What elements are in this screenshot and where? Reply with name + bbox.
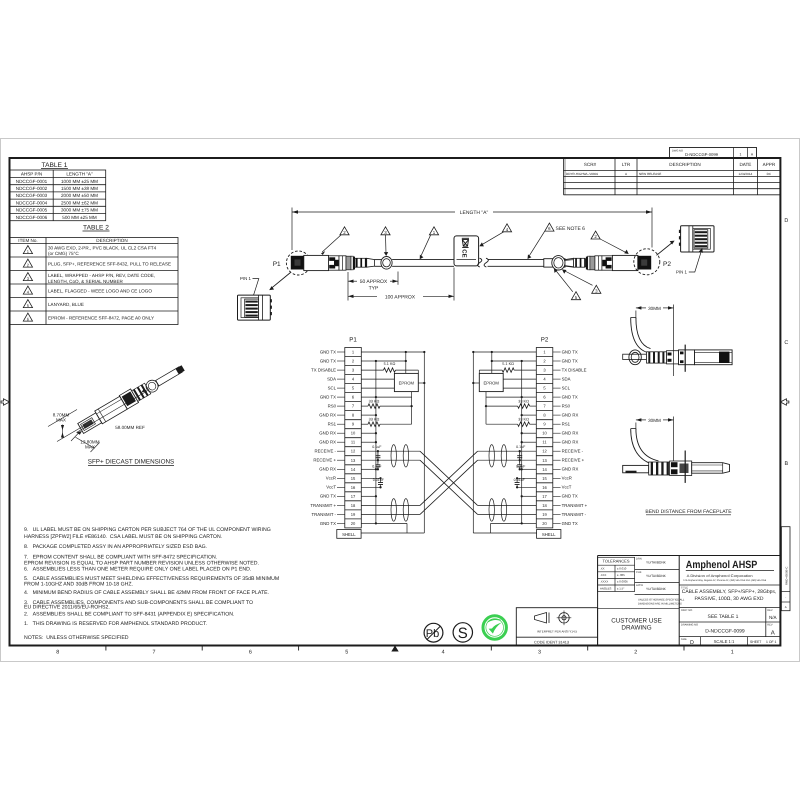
svg-text:0.1uF: 0.1uF [516, 465, 526, 469]
svg-text:.XXX: .XXX [600, 573, 607, 577]
svg-text:P1: P1 [273, 261, 281, 268]
svg-text:D: D [690, 640, 694, 646]
svg-text:ANGLES: ANGLES [600, 586, 611, 590]
svg-text:11: 11 [351, 440, 356, 445]
svg-text:D: D [784, 218, 788, 224]
svg-text:2: 2 [634, 649, 637, 655]
svg-text:0.1uF: 0.1uF [516, 445, 526, 449]
svg-text:RS0: RS0 [562, 404, 571, 409]
svg-text:D-NDCCGF-0099: D-NDCCGF-0099 [685, 152, 719, 157]
svg-text:16: 16 [351, 485, 356, 490]
svg-text:DWG NO: DWG NO [672, 150, 683, 153]
svg-text:± .005: ± .005 [617, 573, 625, 577]
svg-text:CUSTOMER USE: CUSTOMER USE [611, 618, 662, 625]
svg-text:50 APPROX: 50 APPROX [360, 279, 388, 285]
svg-text:B: B [784, 461, 788, 467]
svg-text:13: 13 [351, 458, 356, 463]
svg-text:RS0: RS0 [328, 404, 337, 409]
svg-text:GND RX: GND RX [562, 431, 579, 436]
svg-text:SHELL: SHELL [542, 532, 556, 537]
svg-text:DESCRIPTION: DESCRIPTION [96, 238, 127, 243]
svg-text:19: 19 [351, 512, 356, 517]
svg-text:FROM 1-10GHZ AND 30dB FROM 10-: FROM 1-10GHZ AND 30dB FROM 10-18 GHZ. [24, 582, 133, 588]
svg-text:APPR: APPR [763, 162, 776, 167]
svg-text:YU/TAI/BDNK: YU/TAI/BDNK [646, 574, 667, 578]
svg-text:100 APPROX: 100 APPROX [385, 294, 416, 300]
svg-text:UNLESS OTHERWISE SPECIFIED ALL: UNLESS OTHERWISE SPECIFIED ALL [638, 599, 685, 602]
svg-text:33 KΩ: 33 KΩ [369, 418, 380, 422]
svg-text:SEE NOTE 6: SEE NOTE 6 [556, 226, 586, 232]
svg-text:APPD: APPD [636, 584, 643, 587]
svg-text:GND RX: GND RX [562, 413, 579, 418]
svg-text:± 0.0005: ± 0.0005 [617, 580, 628, 584]
svg-text:SCL: SCL [328, 386, 337, 391]
svg-text:GND RX: GND RX [319, 467, 336, 472]
svg-text:SCL: SCL [562, 386, 571, 391]
svg-text:GND TX: GND TX [320, 358, 336, 363]
svg-text:VccR: VccR [326, 476, 336, 481]
svg-text:1: 1 [731, 649, 734, 655]
svg-text:GND TX: GND TX [320, 494, 336, 499]
svg-text:TRANSMIT -: TRANSMIT - [562, 512, 587, 517]
svg-text:12: 12 [351, 449, 356, 454]
svg-text:500 MM ±25 MM: 500 MM ±25 MM [62, 215, 97, 220]
svg-text:EPROM - REFERENCE SFF-8472, PA: EPROM - REFERENCE SFF-8472, PAGE A0 ONLY [48, 315, 154, 320]
svg-text:11: 11 [542, 440, 547, 445]
svg-text:LABEL, FLAGGED - WEEE LOGO AND: LABEL, FLAGGED - WEEE LOGO AND CE LOGO [48, 288, 152, 293]
svg-text:1000 MM ±25 MM: 1000 MM ±25 MM [61, 179, 98, 184]
svg-text:0.01uF: 0.01uF [514, 478, 526, 482]
svg-text:0.1uF: 0.1uF [372, 445, 382, 449]
svg-text:RECEIVE +: RECEIVE + [562, 458, 585, 463]
svg-text:2000 MM ±50 MM: 2000 MM ±50 MM [61, 193, 98, 198]
svg-text:NDCCGF-0002: NDCCGF-0002 [16, 186, 48, 191]
svg-text:1 OF 1: 1 OF 1 [766, 640, 776, 644]
svg-text:TABLE 1: TABLE 1 [42, 162, 68, 169]
svg-text:P1: P1 [349, 337, 357, 344]
svg-text:33 KΩ: 33 KΩ [369, 399, 380, 403]
svg-text:REV: REV [767, 609, 773, 612]
svg-text:.XX: .XX [600, 567, 605, 571]
svg-text:CABLE ASSEMBLY, SFP+/SFP+,: CABLE ASSEMBLY, SFP+/SFP+, 28Gbps, [682, 589, 777, 595]
svg-text:± 0.010: ± 0.010 [617, 567, 627, 571]
svg-text:3: 3 [538, 649, 541, 655]
svg-text:8. PACKAGE COMPLETED ASSY IN: 8. PACKAGE COMPLETED ASSY IN AN APPROPRI… [24, 544, 207, 550]
svg-text:3000 MM ±75 MM: 3000 MM ±75 MM [61, 208, 98, 213]
svg-text:1: 1 [740, 153, 742, 157]
svg-text:Amphenol AHSP: Amphenol AHSP [686, 559, 758, 571]
svg-text:GND RX: GND RX [562, 440, 579, 445]
svg-text:DIMENSIONS ARE IN MILLIMETERS: DIMENSIONS ARE IN MILLIMETERS [638, 602, 682, 605]
svg-text:TRANSMIT +: TRANSMIT + [310, 503, 336, 508]
svg-text:.XXXX: .XXXX [600, 580, 608, 584]
svg-text:SFP+ DIECAST DIMENSIONS: SFP+ DIECAST DIMENSIONS [88, 459, 174, 466]
svg-text:YU/TAI/BDNK: YU/TAI/BDNK [646, 561, 667, 565]
svg-text:13: 13 [542, 458, 547, 463]
svg-text:MAX: MAX [56, 418, 66, 423]
svg-text:GND RX: GND RX [319, 431, 336, 436]
svg-text:CE: CE [461, 249, 468, 257]
svg-text:NDCCGF-0001: NDCCGF-0001 [16, 179, 48, 184]
svg-text:SEE TABLE 1: SEE TABLE 1 [708, 614, 739, 620]
svg-text:20: 20 [351, 521, 356, 526]
svg-text:18: 18 [542, 503, 547, 508]
svg-text:10: 10 [542, 431, 547, 436]
svg-text:SHELL: SHELL [342, 532, 356, 537]
svg-text:PART NO: PART NO [681, 609, 692, 612]
svg-text:PASSIVE, 100Ω, 30 AWG EXD: PASSIVE, 100Ω, 30 AWG EXD [694, 596, 763, 602]
svg-text:RECEIVE -: RECEIVE - [562, 449, 584, 454]
svg-text:TRANSMIT +: TRANSMIT + [562, 503, 588, 508]
svg-text:0.1uF: 0.1uF [372, 465, 382, 469]
svg-text:6: 6 [249, 649, 252, 655]
svg-text:BEND DISTANCE FROM FACEPLATE: BEND DISTANCE FROM FACEPLATE [645, 509, 732, 515]
svg-text:CODE IDENT 31413: CODE IDENT 31413 [534, 641, 569, 645]
svg-text:NDCCGF-0006: NDCCGF-0006 [16, 215, 48, 220]
svg-text:GND TX: GND TX [320, 349, 336, 354]
svg-text:SHEET: SHEET [750, 640, 761, 644]
svg-text:123 Amphenol Way, Nogales AZ,: 123 Amphenol Way, Nogales AZ, Phoenix AZ… [683, 579, 767, 582]
svg-text:12/4/2014: 12/4/2014 [739, 172, 753, 176]
svg-text:RS1: RS1 [562, 422, 571, 427]
svg-text:NDCCGF-0005: NDCCGF-0005 [16, 208, 48, 213]
svg-text:SDA: SDA [562, 377, 571, 382]
svg-text:RECEIVE -: RECEIVE - [315, 449, 337, 454]
svg-text:4: 4 [442, 649, 445, 655]
svg-text:ITEM No.: ITEM No. [18, 238, 37, 243]
svg-text:SCR#: SCR# [584, 162, 597, 167]
svg-text:LENGTH "A": LENGTH "A" [460, 210, 489, 216]
svg-text:20: 20 [542, 521, 547, 526]
svg-text:10: 10 [351, 431, 356, 436]
svg-text:EPROM: EPROM [399, 381, 415, 386]
svg-text:5.1 KΩ: 5.1 KΩ [384, 362, 396, 366]
svg-text:P2: P2 [663, 261, 671, 268]
svg-text:NOTES: UNLESS OTHERWISE SPECI: NOTES: UNLESS OTHERWISE SPECIFIED [24, 635, 129, 641]
svg-text:PIN 1: PIN 1 [240, 276, 252, 281]
svg-text:C: C [784, 340, 788, 346]
svg-text:PIN 1: PIN 1 [676, 270, 688, 275]
svg-text:SDA: SDA [327, 377, 336, 382]
svg-text:17: 17 [542, 494, 547, 499]
svg-text:LABEL, WRAPPED - AHSP P/N, REV: LABEL, WRAPPED - AHSP P/N, REV, DATE COD… [48, 273, 155, 278]
svg-text:HARNESS [ZPFW2] FILE #E86140.: HARNESS [ZPFW2] FILE #E86140. CSA LABEL … [24, 534, 222, 540]
svg-text:DRAWING NO: DRAWING NO [681, 624, 698, 627]
svg-text:19: 19 [542, 512, 547, 517]
svg-text:2. ASSEMBLIES SHALL BE COMPL: 2. ASSEMBLIES SHALL BE COMPLIANT TO SFF-… [24, 612, 234, 618]
svg-text:GND TX: GND TX [562, 395, 578, 400]
svg-text:LTR: LTR [622, 162, 631, 167]
svg-text:1500 MM ±38 MM: 1500 MM ±38 MM [61, 186, 98, 191]
svg-text:14: 14 [351, 467, 356, 472]
svg-text:TABLE 2: TABLE 2 [83, 225, 109, 232]
svg-text:± 1.5°: ± 1.5° [617, 586, 624, 590]
svg-text:DESCRIPTION: DESCRIPTION [669, 162, 700, 167]
svg-text:D-NDCCGF-0099: D-NDCCGF-0099 [705, 629, 745, 635]
svg-text:LENGTH, CoO, & SERIAL NUMBER: LENGTH, CoO, & SERIAL NUMBER [48, 279, 124, 284]
svg-text:NDCCGF-0004: NDCCGF-0004 [16, 200, 48, 205]
svg-text:7. EPROM CONTENT SHALL BE CO: 7. EPROM CONTENT SHALL BE COMPLIANT WITH… [24, 554, 217, 560]
svg-text:GND RX: GND RX [319, 440, 336, 445]
svg-text:SCALE 1:1: SCALE 1:1 [714, 639, 735, 644]
svg-text:GND TX: GND TX [562, 358, 578, 363]
svg-text:GND TX: GND TX [562, 349, 578, 354]
svg-text:15: 15 [351, 476, 356, 481]
svg-text:VccT: VccT [326, 485, 336, 490]
svg-text:EU DIRECTIVE 2011/65/EU-ROHS2.: EU DIRECTIVE 2011/65/EU-ROHS2. [24, 605, 110, 611]
svg-text:TX DISABLE: TX DISABLE [562, 367, 587, 372]
svg-text:RECEIVE +: RECEIVE + [313, 458, 336, 463]
svg-text:VccT: VccT [562, 485, 572, 490]
svg-text:TRANSMIT -: TRANSMIT - [311, 512, 336, 517]
svg-text:INTERPRET PER ANSI Y14.5: INTERPRET PER ANSI Y14.5 [537, 630, 578, 634]
svg-text:DATE: DATE [739, 162, 751, 167]
svg-text:DRN: DRN [636, 558, 642, 561]
svg-text:9. UL LABEL MUST BE ON SHIPP: 9. UL LABEL MUST BE ON SHIPPING CARTON P… [24, 527, 271, 533]
svg-text:RMD-4500B-C: RMD-4500B-C [785, 567, 789, 585]
svg-text:TYP: TYP [369, 286, 379, 292]
svg-text:1. THIS DRAWING IS RESERVED: 1. THIS DRAWING IS RESERVED FOR AMPHENOL… [24, 621, 207, 627]
svg-text:GND RX: GND RX [562, 467, 579, 472]
svg-text:EPROM REVISION IS EQUAL TO AHS: EPROM REVISION IS EQUAL TO AHSP PART NUM… [24, 561, 259, 567]
svg-text:17: 17 [351, 494, 356, 499]
svg-text:SIZE: SIZE [681, 638, 687, 641]
svg-text:GND RX: GND RX [319, 413, 336, 418]
svg-text:33 KΩ: 33 KΩ [518, 399, 529, 403]
svg-text:15: 15 [542, 476, 547, 481]
svg-text:TX DISABLE: TX DISABLE [311, 367, 336, 372]
svg-text:0.01uF: 0.01uF [373, 478, 385, 482]
svg-text:GND TX: GND TX [562, 521, 578, 526]
svg-text:30MM: 30MM [648, 418, 661, 423]
svg-text:N/A: N/A [769, 615, 778, 620]
svg-text:DC: DC [767, 172, 772, 176]
svg-text:16: 16 [542, 485, 547, 490]
svg-text:DDYR-HIGHWL-V0801: DDYR-HIGHWL-V0801 [566, 172, 598, 176]
svg-text:-: - [785, 595, 786, 599]
svg-text:6. ASSEMBLIES LESS THAN ONE: 6. ASSEMBLIES LESS THAN ONE METER REQUIR… [24, 567, 251, 573]
svg-text:TOLERANCES: TOLERANCES [602, 559, 629, 564]
svg-text:VccR: VccR [562, 476, 572, 481]
svg-text:LENGTH "A": LENGTH "A" [66, 172, 93, 177]
svg-text:REV: REV [767, 624, 773, 627]
svg-text:YU/TAI/BDNK: YU/TAI/BDNK [646, 587, 667, 591]
svg-text:7: 7 [153, 649, 156, 655]
svg-text:S: S [458, 625, 468, 642]
svg-text:A: A [785, 605, 787, 609]
svg-text:33 KΩ: 33 KΩ [518, 418, 529, 422]
svg-text:30 AWG EXD, 2-PR., PVC BLACK,: 30 AWG EXD, 2-PR., PVC BLACK, UL CL2 CSA… [48, 245, 157, 250]
svg-text:30MM: 30MM [648, 306, 661, 311]
svg-text:GND TX: GND TX [320, 395, 336, 400]
svg-text:NDCCGF-0003: NDCCGF-0003 [16, 193, 48, 198]
svg-text:2500 MM ±62 MM: 2500 MM ±62 MM [61, 200, 98, 205]
svg-text:PLUG, SFP+, REFERENCE SFF-8432: PLUG, SFP+, REFERENCE SFF-8432, PULL TO … [48, 261, 171, 266]
svg-text:(or CMG) 75°C: (or CMG) 75°C [48, 251, 79, 256]
svg-text:GND TX: GND TX [562, 494, 578, 499]
svg-text:GND TX: GND TX [320, 521, 336, 526]
svg-text:NEW RELEASE: NEW RELEASE [639, 172, 661, 176]
svg-text:A Division of Amphenol Cor: A Division of Amphenol Corporation [687, 574, 753, 578]
svg-text:LANYARD, BLUE: LANYARD, BLUE [48, 302, 84, 307]
svg-text:5: 5 [345, 649, 348, 655]
svg-text:A: A [771, 629, 775, 636]
svg-text:4. MINIMUM BEND RADIUS OF CA: 4. MINIMUM BEND RADIUS OF CABLE ASSEMBLY… [24, 590, 269, 596]
svg-text:CHK: CHK [636, 571, 642, 574]
svg-text:P2: P2 [541, 337, 549, 344]
svg-text:5.1 KΩ: 5.1 KΩ [502, 362, 514, 366]
svg-text:DRAWING: DRAWING [621, 625, 651, 632]
svg-text:12: 12 [542, 449, 547, 454]
svg-text:8: 8 [56, 649, 59, 655]
svg-text:58.00MM REF: 58.00MM REF [115, 425, 145, 430]
svg-text:AHSP P/N: AHSP P/N [21, 172, 42, 177]
svg-text:EPROM: EPROM [484, 381, 500, 386]
svg-text:RS1: RS1 [328, 422, 337, 427]
svg-text:18: 18 [351, 503, 356, 508]
svg-text:14: 14 [542, 467, 547, 472]
